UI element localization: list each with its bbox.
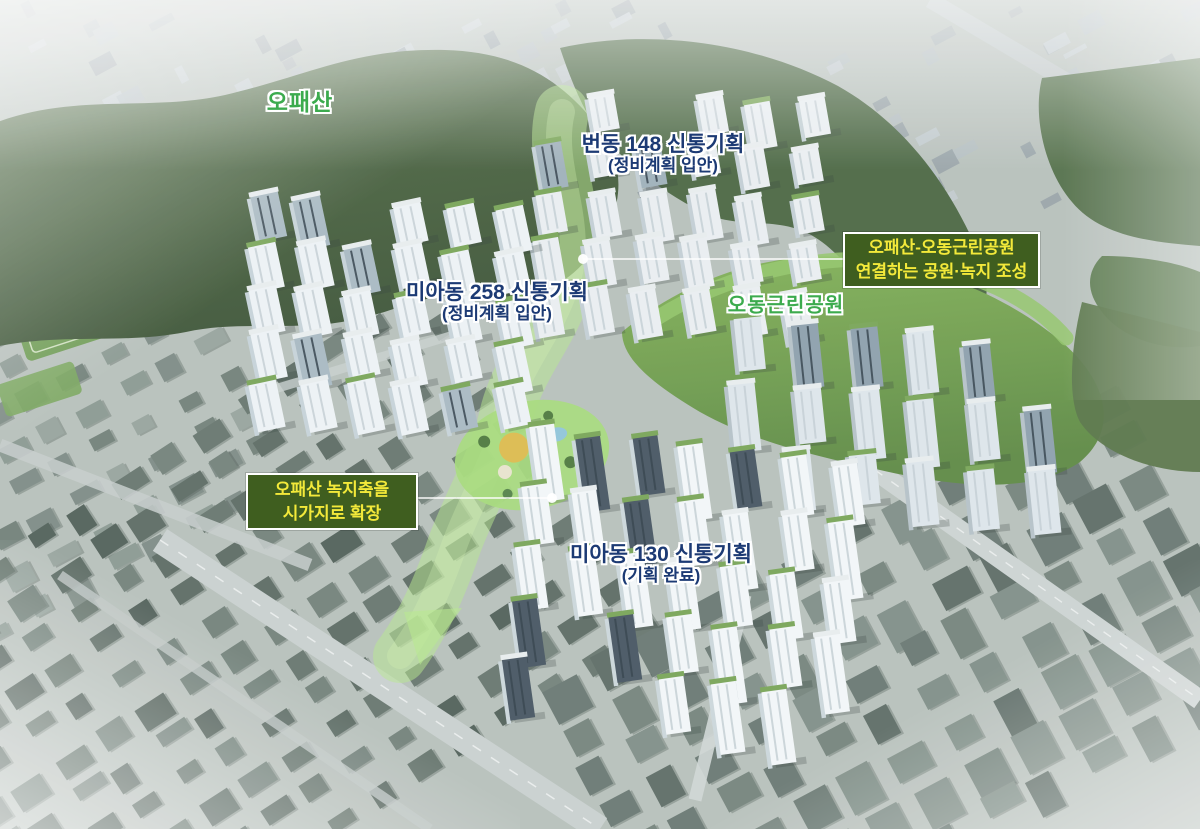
project-status: (정비계획 입안) xyxy=(406,304,588,324)
scene-background xyxy=(0,0,1200,829)
callout-line: 오패산-오동근린공원 xyxy=(845,236,1038,260)
callout-line: 연결하는 공원·녹지 조성 xyxy=(845,260,1038,284)
area-label-odong-park: 오동근린공원 xyxy=(728,289,844,318)
project-label-beondong-148: 번동 148 신통기획 (정비계획 입안) xyxy=(582,133,745,176)
project-status: (정비계획 입안) xyxy=(582,156,745,176)
haze-overlays xyxy=(0,0,1200,829)
project-title: 미아동 130 신통기획 xyxy=(570,543,752,566)
project-label-miadong-130: 미아동 130 신통기획 (기획 완료) xyxy=(570,543,752,586)
callout-line: 오패산 녹지축을 xyxy=(248,478,416,502)
project-label-miadong-258: 미아동 258 신통기획 (정비계획 입안) xyxy=(406,281,588,324)
callout-green-axis: 오패산 녹지축을 시가지로 확장 xyxy=(246,473,418,530)
area-label-opaesan: 오패산 xyxy=(267,83,333,117)
project-title: 미아동 258 신통기획 xyxy=(406,281,588,304)
project-status: (기획 완료) xyxy=(570,566,752,586)
project-title: 번동 148 신통기획 xyxy=(582,133,745,156)
aerial-masterplan-rendering: 오패산 오동근린공원 번동 148 신통기획 (정비계획 입안) 미아동 258… xyxy=(0,0,1200,829)
haze-veil xyxy=(0,0,1200,829)
callout-line: 시가지로 확장 xyxy=(248,502,416,526)
callout-park-connection: 오패산-오동근린공원 연결하는 공원·녹지 조성 xyxy=(843,232,1040,288)
